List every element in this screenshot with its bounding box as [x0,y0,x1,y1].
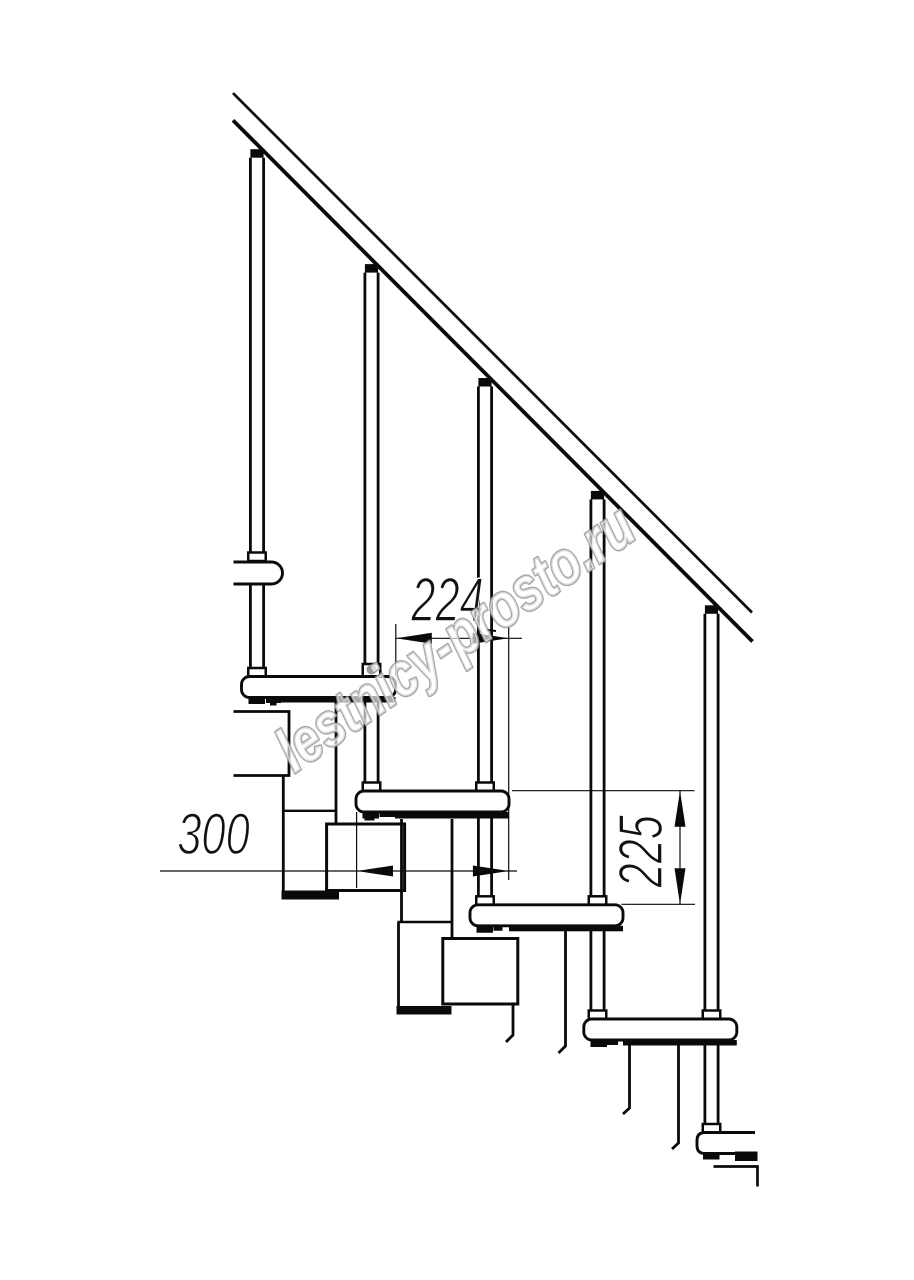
svg-text:300: 300 [177,802,250,866]
svg-text:lestnicy-prosto.ru: lestnicy-prosto.ru [263,490,648,785]
svg-text:225: 225 [608,815,676,888]
